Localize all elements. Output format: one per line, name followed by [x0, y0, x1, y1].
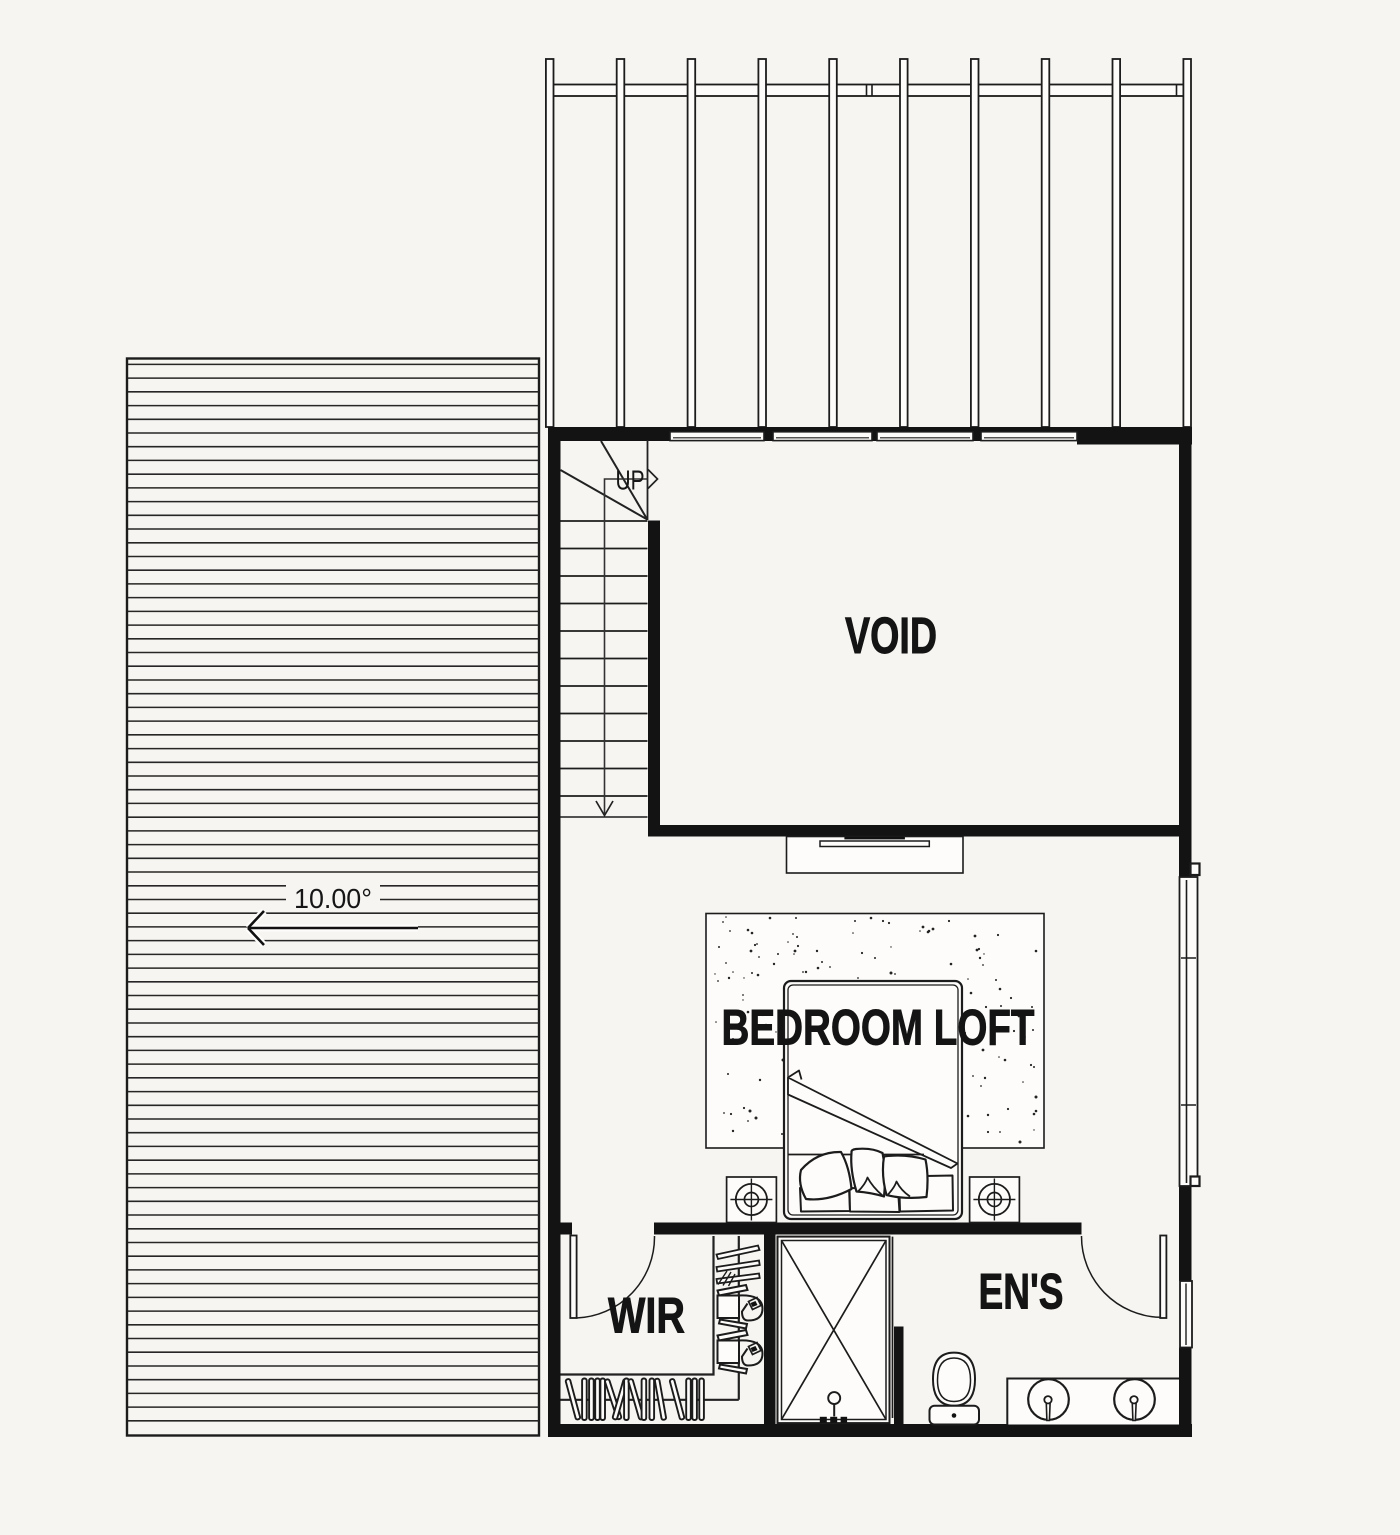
svg-text:VOID: VOID [845, 607, 937, 664]
svg-text:10.00°: 10.00° [294, 883, 372, 914]
svg-text:WIR: WIR [608, 1288, 685, 1344]
svg-text:BEDROOM LOFT: BEDROOM LOFT [722, 1000, 1035, 1056]
svg-text:EN'S: EN'S [979, 1264, 1064, 1320]
svg-text:UP: UP [616, 465, 645, 496]
